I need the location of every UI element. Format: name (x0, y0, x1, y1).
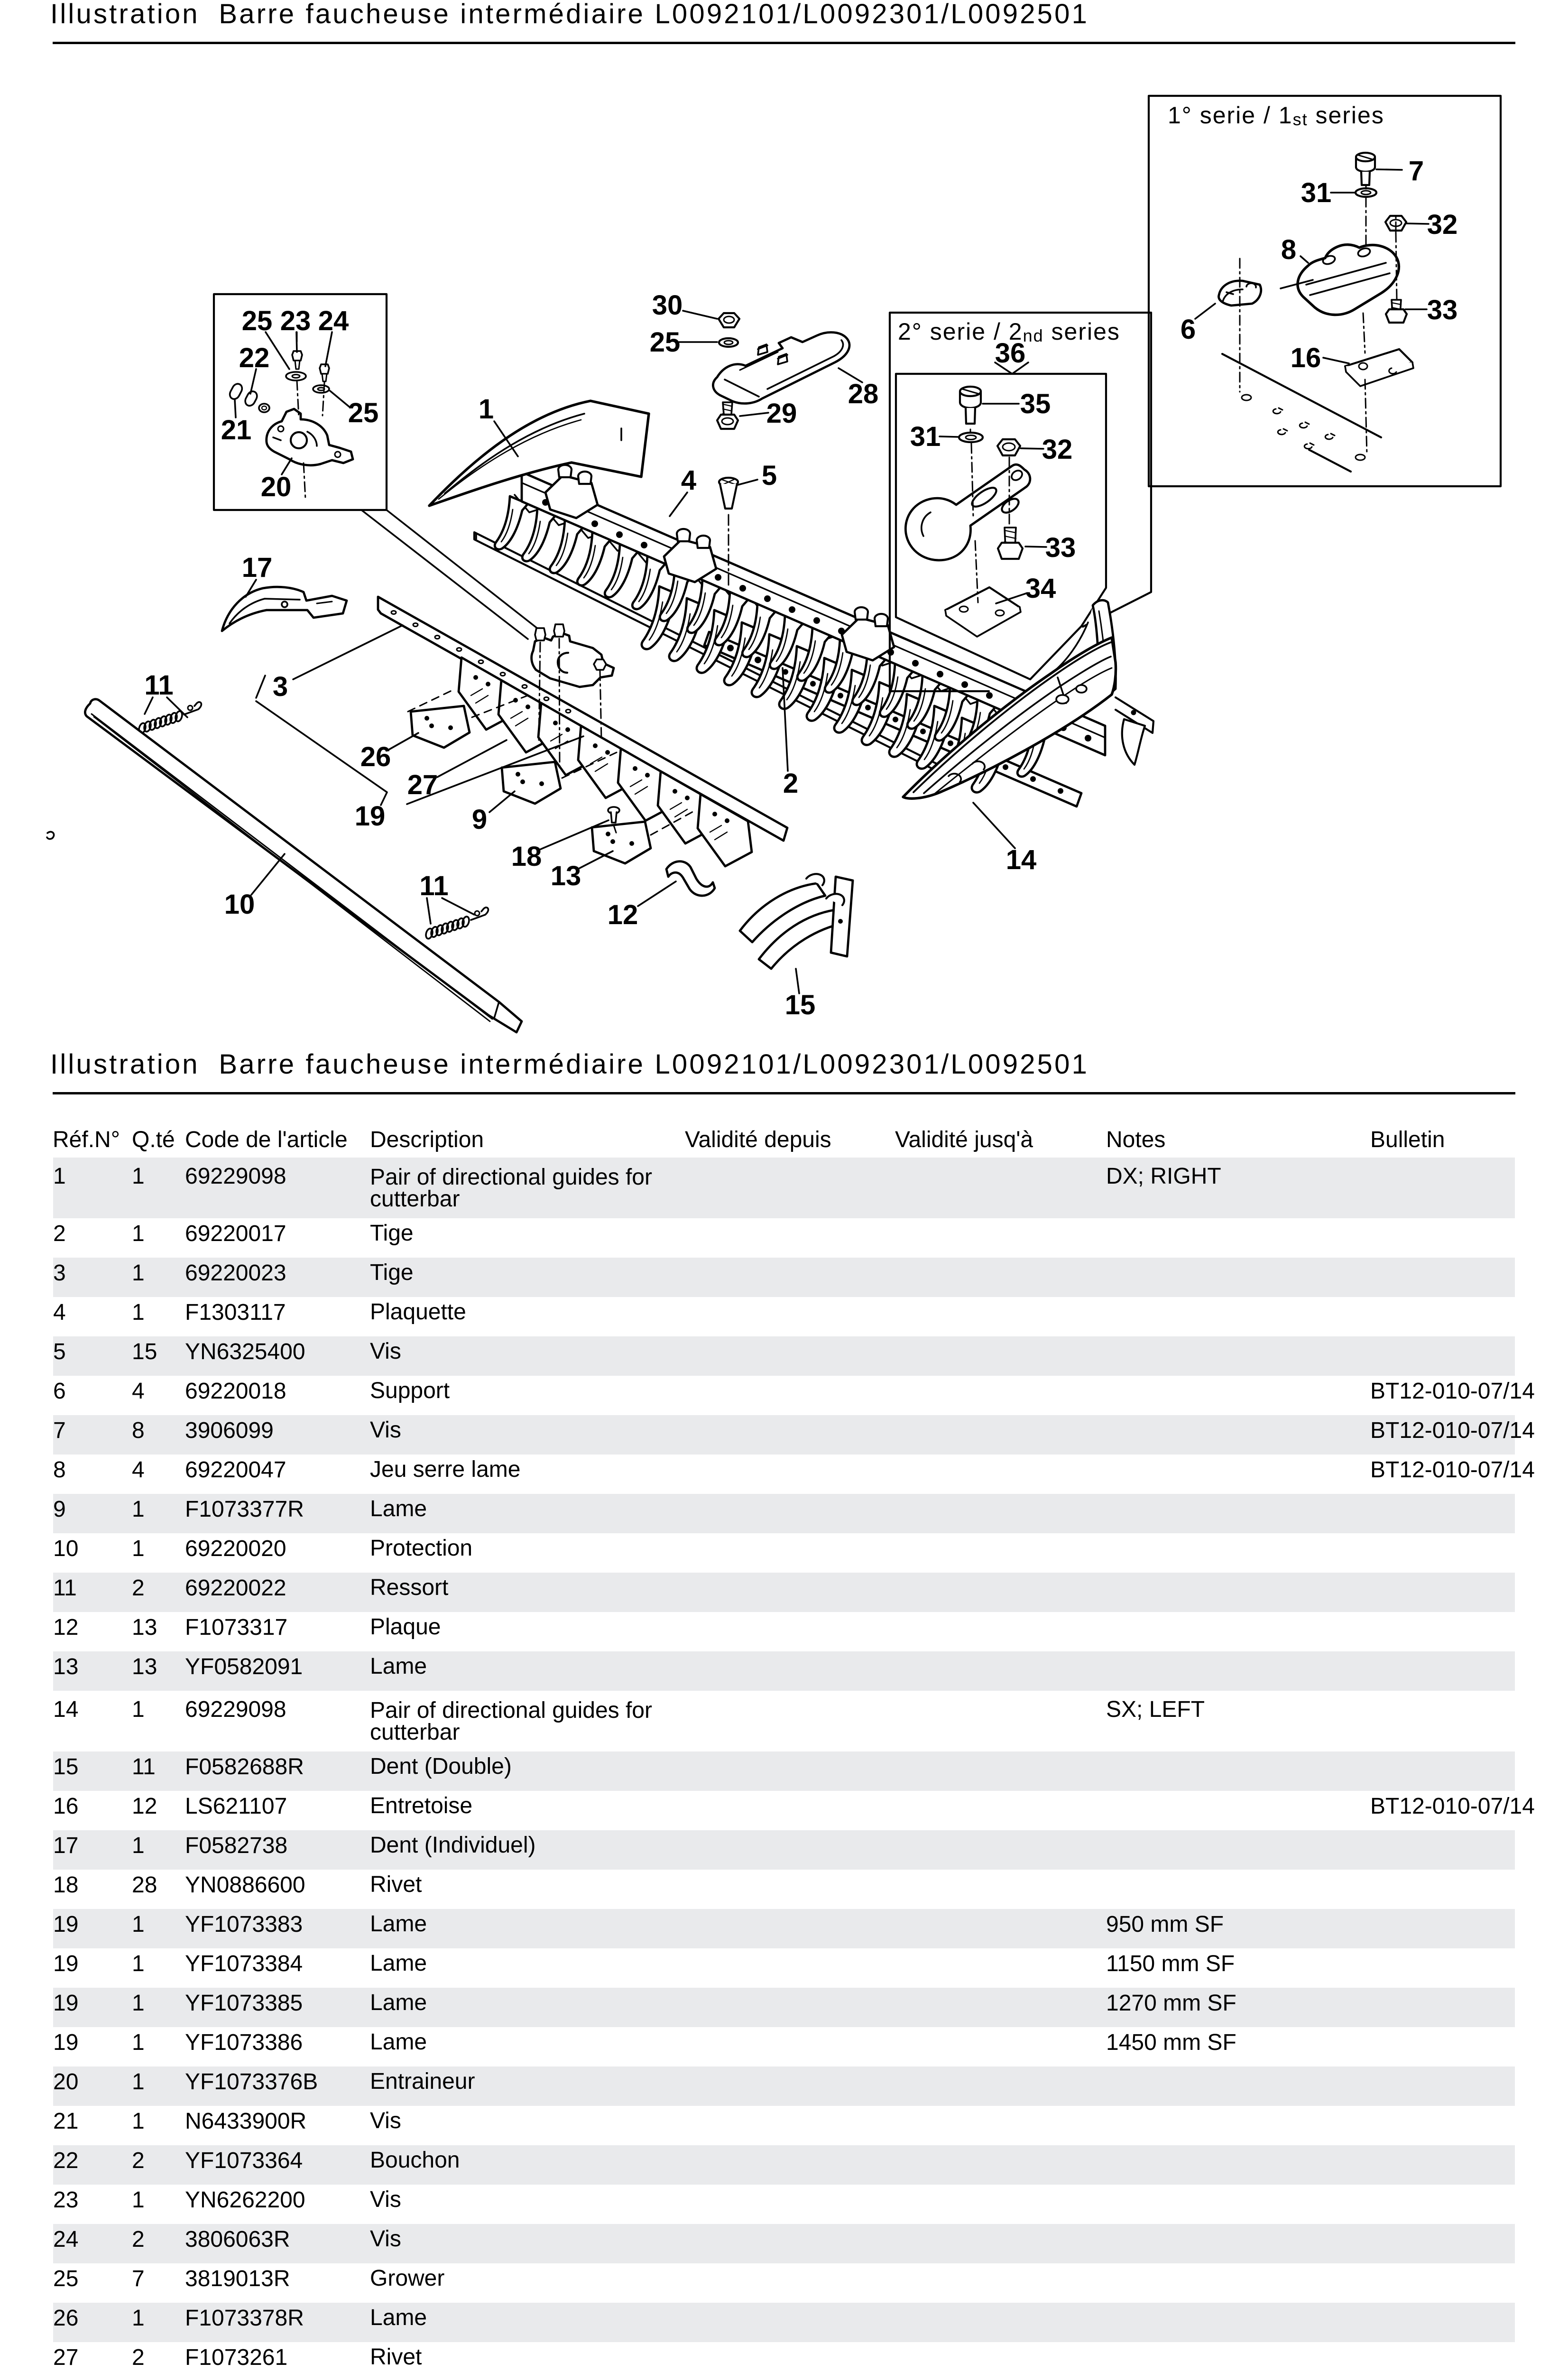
svg-text:17: 17 (242, 552, 273, 583)
svg-text:9: 9 (472, 804, 487, 835)
svg-text:20: 20 (261, 472, 292, 502)
svg-text:21: 21 (221, 415, 252, 445)
svg-text:30: 30 (652, 290, 683, 321)
svg-text:32: 32 (1427, 209, 1458, 240)
svg-text:23: 23 (280, 306, 311, 336)
svg-text:11: 11 (144, 670, 173, 701)
svg-text:24: 24 (318, 306, 349, 336)
svg-text:14: 14 (1006, 844, 1037, 875)
svg-text:15: 15 (785, 990, 816, 1020)
svg-text:8: 8 (1281, 234, 1296, 265)
svg-text:7: 7 (1409, 156, 1424, 186)
svg-text:18: 18 (511, 841, 542, 872)
svg-text:2: 2 (783, 768, 798, 799)
svg-text:33: 33 (1427, 295, 1458, 325)
svg-text:25: 25 (650, 327, 681, 358)
svg-text:1° serie / 1st series: 1° serie / 1st series (1168, 102, 1384, 129)
svg-text:33: 33 (1045, 532, 1076, 563)
svg-text:27: 27 (407, 769, 438, 800)
svg-text:3: 3 (273, 671, 288, 702)
svg-text:35: 35 (1020, 389, 1051, 419)
svg-text:12: 12 (608, 899, 638, 930)
svg-text:22: 22 (239, 343, 270, 373)
svg-text:25: 25 (242, 306, 273, 336)
svg-text:16: 16 (1291, 343, 1321, 373)
svg-text:1: 1 (479, 394, 494, 425)
svg-text:6: 6 (1181, 314, 1196, 345)
svg-text:32: 32 (1042, 434, 1073, 465)
svg-text:2° serie / 2nd series: 2° serie / 2nd series (898, 318, 1120, 345)
svg-text:28: 28 (848, 379, 879, 409)
svg-text:31: 31 (910, 421, 941, 452)
svg-text:34: 34 (1025, 573, 1056, 604)
svg-text:10: 10 (224, 889, 255, 920)
svg-text:31: 31 (1301, 177, 1332, 208)
svg-text:5: 5 (762, 460, 777, 491)
svg-text:25: 25 (348, 398, 379, 428)
svg-text:29: 29 (766, 398, 797, 429)
svg-text:11: 11 (419, 871, 448, 901)
svg-text:4: 4 (681, 465, 696, 496)
svg-text:13: 13 (551, 861, 581, 891)
svg-text:26: 26 (360, 741, 391, 772)
